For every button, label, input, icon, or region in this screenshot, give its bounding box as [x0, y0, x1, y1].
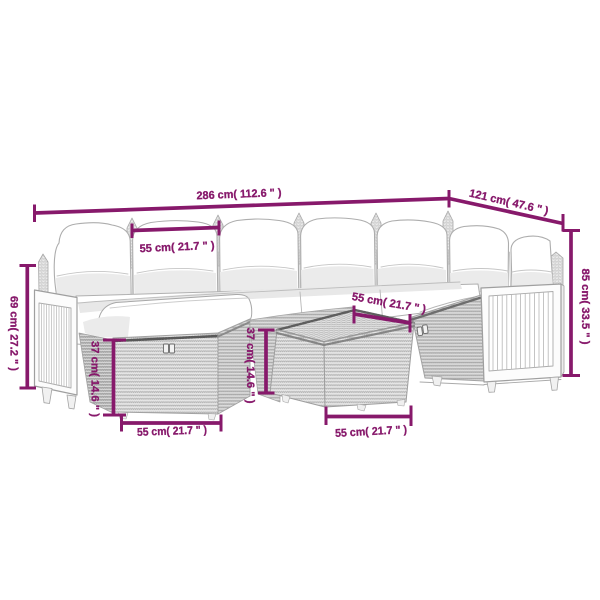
- svg-text:37 cm( 14.6 " ): 37 cm( 14.6 " ): [244, 328, 256, 404]
- svg-text:85 cm( 33.5 " ): 85 cm( 33.5 " ): [579, 269, 591, 345]
- svg-text:55 cm( 21.7 " ): 55 cm( 21.7 " ): [137, 424, 208, 438]
- svg-text:37 cm( 14.6 " ): 37 cm( 14.6 " ): [89, 341, 101, 417]
- svg-text:69 cm( 27.2 " ): 69 cm( 27.2 " ): [7, 296, 19, 371]
